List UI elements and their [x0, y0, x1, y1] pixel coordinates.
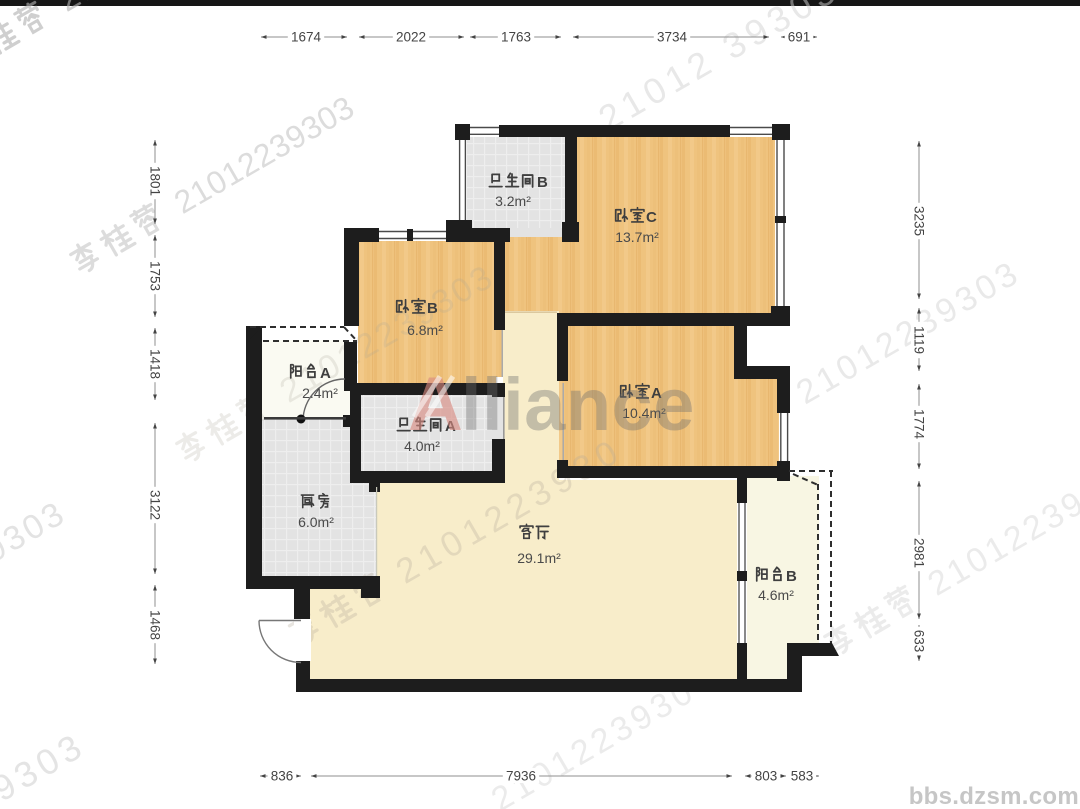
svg-text:3734: 3734 [657, 30, 688, 45]
svg-text:1774: 1774 [912, 409, 927, 440]
svg-text:1119: 1119 [912, 326, 927, 354]
svg-text:836: 836 [271, 769, 294, 784]
svg-text:B: B [537, 174, 548, 191]
svg-text:A: A [320, 365, 331, 382]
svg-text:633: 633 [912, 630, 927, 653]
svg-text:2.4m²: 2.4m² [302, 385, 338, 401]
svg-text:2981: 2981 [912, 538, 927, 568]
svg-text:1468: 1468 [148, 610, 163, 640]
svg-text:bbs.dzsm.com: bbs.dzsm.com [909, 783, 1079, 809]
svg-text:B: B [427, 300, 438, 317]
svg-text:B: B [786, 568, 797, 585]
svg-text:1418: 1418 [148, 349, 163, 379]
svg-text:C: C [646, 209, 657, 226]
svg-text:6.8m²: 6.8m² [407, 322, 443, 338]
svg-text:lliance: lliance [461, 363, 695, 446]
svg-text:4.6m²: 4.6m² [758, 587, 794, 603]
svg-text:1801: 1801 [148, 166, 163, 196]
svg-text:13.7m²: 13.7m² [615, 229, 659, 245]
svg-text:691: 691 [788, 30, 811, 45]
svg-text:1674: 1674 [291, 30, 322, 45]
svg-text:6.0m²: 6.0m² [298, 514, 334, 530]
svg-text:3235: 3235 [912, 206, 927, 236]
svg-text:2022: 2022 [396, 30, 426, 45]
svg-text:3.2m²: 3.2m² [495, 193, 531, 209]
svg-text:803: 803 [755, 769, 778, 784]
svg-text:7936: 7936 [506, 769, 536, 784]
svg-text:583: 583 [791, 769, 814, 784]
svg-text:29.1m²: 29.1m² [517, 550, 561, 566]
svg-text:3122: 3122 [148, 490, 163, 520]
svg-text:1753: 1753 [148, 261, 163, 291]
svg-text:1763: 1763 [501, 30, 531, 45]
